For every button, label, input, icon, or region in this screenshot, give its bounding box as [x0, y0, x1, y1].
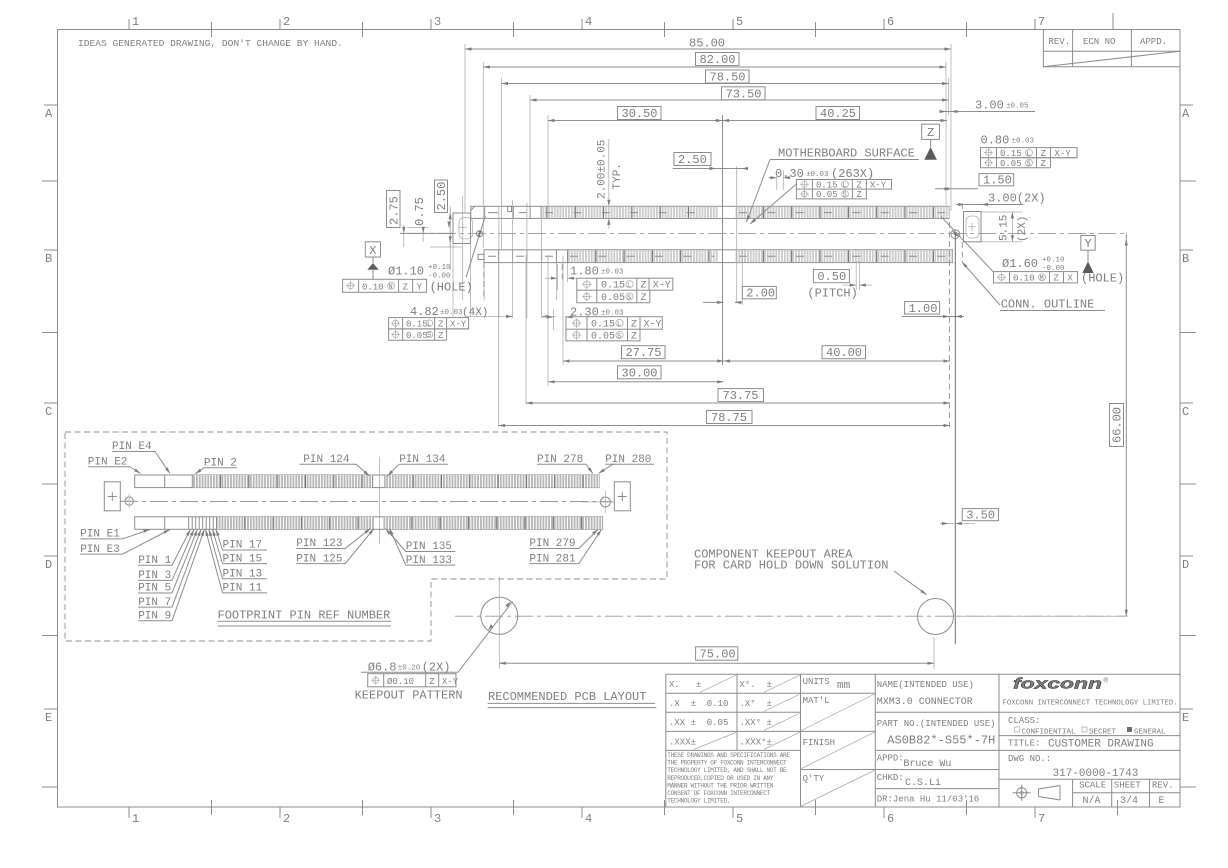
svg-text:.X° ±: .X° ±: [740, 699, 772, 709]
svg-text:Z: Z: [1041, 149, 1047, 159]
svg-text:GENERAL: GENERAL: [1134, 729, 1166, 737]
svg-text:78.50: 78.50: [710, 71, 746, 85]
svg-text:NAME(INTENDED USE): NAME(INTENDED USE): [877, 680, 974, 690]
svg-text:mm: mm: [837, 680, 851, 692]
svg-text:0.15: 0.15: [591, 320, 615, 331]
svg-text:X-Y: X-Y: [442, 677, 459, 687]
svg-text:N: N: [389, 284, 393, 292]
svg-text:0.15: 0.15: [1000, 149, 1022, 159]
svg-text:A: A: [1182, 107, 1190, 121]
svg-text:C: C: [1182, 405, 1189, 419]
svg-text:APPD:: APPD:: [877, 754, 904, 764]
svg-text:X°. ±: X°. ±: [740, 680, 772, 690]
svg-text:S: S: [617, 333, 621, 341]
svg-text:6: 6: [887, 812, 894, 826]
svg-text:FOOTPRINT PIN REF NUMBER: FOOTPRINT PIN REF NUMBER: [218, 608, 391, 622]
svg-text:0.75: 0.75: [413, 197, 427, 226]
svg-text:CHKD:: CHKD:: [877, 773, 904, 783]
svg-text:2: 2: [283, 812, 290, 826]
svg-text:1.50: 1.50: [983, 174, 1012, 188]
svg-text:0.05: 0.05: [601, 293, 625, 304]
svg-text:5.15: 5.15: [999, 215, 1011, 241]
svg-text:E: E: [1182, 711, 1189, 725]
svg-text:2: 2: [283, 15, 290, 29]
svg-text:X. ±: X. ±: [669, 680, 701, 690]
svg-text:Z: Z: [429, 677, 435, 687]
svg-text:N/A: N/A: [1083, 795, 1101, 807]
svg-text:2.50: 2.50: [678, 153, 707, 167]
svg-text:L: L: [627, 282, 631, 290]
svg-text:1: 1: [132, 812, 139, 826]
svg-text:317-0000-1743: 317-0000-1743: [1053, 768, 1139, 780]
svg-text:THE PROPERTY OF FOXCONN INTERC: THE PROPERTY OF FOXCONN INTERCONNECT: [667, 760, 787, 767]
svg-text:A: A: [45, 107, 53, 121]
svg-text:Z: Z: [1041, 159, 1047, 169]
svg-text:85.00: 85.00: [689, 37, 725, 51]
svg-text:TECHNOLOGY LIMITED, AND SHALL: TECHNOLOGY LIMITED, AND SHALL NOT BE: [667, 767, 787, 774]
svg-text:(HOLE): (HOLE): [1081, 272, 1124, 286]
svg-text:SHEET: SHEET: [1114, 781, 1142, 791]
svg-text:IDEAS GENERATED DRAWING, DON'T: IDEAS GENERATED DRAWING, DON'T CHANGE BY…: [78, 38, 343, 49]
svg-text:27.75: 27.75: [626, 346, 662, 360]
svg-text:0.05: 0.05: [816, 190, 838, 200]
svg-text:E: E: [1159, 796, 1165, 807]
svg-text:0.50: 0.50: [817, 270, 846, 284]
svg-text:Q'TY: Q'TY: [803, 774, 825, 784]
svg-text:TECHNOLOGY LIMITED,: TECHNOLOGY LIMITED,: [667, 798, 730, 805]
svg-text:4: 4: [585, 812, 592, 826]
svg-text:Y: Y: [417, 282, 423, 292]
svg-text:73.50: 73.50: [726, 87, 762, 101]
svg-text:ECN NO: ECN NO: [1083, 37, 1115, 47]
svg-text:DWG NO.:: DWG NO.:: [1008, 754, 1051, 764]
svg-text:2.50: 2.50: [435, 182, 449, 211]
svg-text:Z: Z: [631, 332, 637, 343]
svg-text:KEEPOUT PATTERN: KEEPOUT PATTERN: [355, 689, 463, 703]
svg-text:CLASS:: CLASS:: [1008, 716, 1040, 726]
svg-text:X-Y: X-Y: [870, 180, 887, 190]
svg-text:4: 4: [585, 15, 592, 29]
svg-text:MAT'L: MAT'L: [803, 696, 830, 706]
svg-text:CUSTOMER DRAWING: CUSTOMER DRAWING: [1048, 738, 1154, 750]
svg-text:±0.03: ±0.03: [440, 309, 463, 317]
svg-text:82.00: 82.00: [700, 53, 736, 67]
svg-text:C.S.Li: C.S.Li: [905, 777, 941, 789]
svg-text:X-Y: X-Y: [644, 320, 662, 331]
svg-text:30.00: 30.00: [622, 366, 658, 380]
svg-text:Z: Z: [403, 282, 409, 292]
svg-text:30.50: 30.50: [622, 107, 658, 121]
svg-text:±0.03: ±0.03: [601, 269, 624, 277]
svg-text:L: L: [617, 321, 621, 329]
svg-text:0.10: 0.10: [362, 282, 384, 292]
svg-text:.XX° ±: .XX° ±: [740, 718, 772, 728]
svg-text:THESE DRAWINGS AND SPECIFICATI: THESE DRAWINGS AND SPECIFICATIONS ARE: [667, 752, 790, 759]
svg-text:2.30: 2.30: [570, 306, 599, 320]
svg-text:Z: Z: [927, 126, 934, 140]
svg-text:B: B: [45, 252, 52, 266]
svg-text:MXM3.0 CONNECTOR: MXM3.0 CONNECTOR: [877, 697, 973, 708]
svg-text:.XXX±: .XXX±: [669, 738, 696, 748]
svg-text:L: L: [843, 182, 847, 190]
svg-text:3.00(2X): 3.00(2X): [988, 192, 1046, 206]
svg-text:0.05: 0.05: [406, 331, 428, 341]
svg-text:±0.20: ±0.20: [398, 665, 421, 673]
svg-text:2.00: 2.00: [746, 287, 775, 301]
svg-text:Ø0.10: Ø0.10: [387, 677, 414, 687]
svg-text:Z: Z: [1054, 274, 1060, 284]
svg-text:S: S: [843, 192, 847, 200]
svg-text:APPD.: APPD.: [1140, 37, 1167, 47]
svg-text:0.15: 0.15: [816, 180, 838, 190]
svg-text:.XXX°±: .XXX°±: [740, 738, 772, 748]
svg-text:M: M: [1040, 275, 1044, 283]
svg-text:+0.10: +0.10: [1042, 257, 1065, 265]
svg-text:0.05: 0.05: [591, 332, 615, 343]
svg-text:X-Y: X-Y: [1055, 149, 1072, 159]
svg-text:(263X): (263X): [831, 167, 874, 181]
svg-text:0.05: 0.05: [1000, 159, 1022, 169]
svg-text:+0.10: +0.10: [428, 264, 451, 272]
svg-text:S: S: [1027, 160, 1031, 168]
svg-text:AS0B82*-S55*-7H: AS0B82*-S55*-7H: [887, 734, 995, 748]
svg-text:Ø1.10: Ø1.10: [388, 265, 424, 279]
svg-text:40.25: 40.25: [820, 107, 856, 121]
svg-text:REV.: REV.: [1152, 781, 1174, 791]
svg-text:X: X: [369, 244, 376, 258]
svg-text:RECOMMENDED PCB LAYOUT: RECOMMENDED PCB LAYOUT: [488, 690, 646, 704]
svg-text:40.00: 40.00: [826, 346, 862, 360]
svg-text:X-Y: X-Y: [450, 320, 467, 330]
svg-text:Bruce Wu: Bruce Wu: [903, 759, 951, 770]
svg-text:PART NO.(INTENDED USE): PART NO.(INTENDED USE): [877, 719, 996, 729]
svg-text:TYP.: TYP.: [612, 163, 624, 189]
svg-text:FOR CARD HOLD DOWN SOLUTION: FOR CARD HOLD DOWN SOLUTION: [694, 559, 888, 573]
svg-text:0.10: 0.10: [1013, 274, 1035, 284]
svg-text:2.00±0.05: 2.00±0.05: [597, 140, 609, 199]
svg-text:3/4: 3/4: [1120, 795, 1138, 807]
svg-text:Ø1.60: Ø1.60: [1002, 257, 1038, 271]
svg-text:75.00: 75.00: [700, 648, 736, 662]
svg-text:CONSENT OF FOXCONN INTERCONNEC: CONSENT OF FOXCONN INTERCONNECT: [667, 790, 770, 797]
svg-text:0.15: 0.15: [406, 320, 428, 330]
svg-text:L: L: [1027, 150, 1031, 158]
svg-text:7: 7: [1038, 812, 1045, 826]
svg-text:0.15: 0.15: [601, 281, 625, 292]
svg-text:1.80: 1.80: [570, 265, 599, 279]
svg-text:73.75: 73.75: [723, 389, 759, 403]
svg-text:7: 7: [1038, 15, 1045, 29]
svg-text:Z: Z: [856, 180, 862, 190]
svg-text:B: B: [1182, 252, 1189, 266]
svg-text:(2X): (2X): [422, 661, 451, 675]
svg-text:5: 5: [736, 812, 743, 826]
svg-text:foxconn: foxconn: [1013, 677, 1102, 693]
svg-text:(2X): (2X): [1017, 216, 1029, 242]
svg-text:±0.03: ±0.03: [806, 171, 829, 179]
svg-text:Z: Z: [631, 320, 637, 331]
svg-text:3: 3: [434, 812, 441, 826]
svg-text:Y: Y: [1085, 237, 1092, 251]
svg-text:MANNER WITHOUT THE PRIOR WRITT: MANNER WITHOUT THE PRIOR WRITTEN: [667, 782, 774, 789]
svg-text:X-Y: X-Y: [653, 281, 671, 292]
svg-text:3.50: 3.50: [966, 509, 995, 523]
svg-text:4.82: 4.82: [410, 305, 439, 319]
svg-text:0.80: 0.80: [981, 134, 1010, 148]
svg-text:FOXCONN INTERCONNECT TECHNOLOG: FOXCONN INTERCONNECT TECHNOLOGY LIMITED.: [1003, 700, 1178, 708]
svg-text:DR:Jena Hu 11/03'16: DR:Jena Hu 11/03'16: [877, 795, 980, 805]
svg-text:®: ®: [1104, 677, 1109, 686]
svg-text:2.75: 2.75: [388, 196, 402, 225]
svg-text:D: D: [1182, 558, 1189, 572]
svg-text:S: S: [427, 332, 431, 340]
svg-text:3.00: 3.00: [975, 99, 1004, 113]
svg-text:66.00: 66.00: [1111, 407, 1125, 443]
svg-text:Z: Z: [641, 293, 647, 304]
svg-text:-0.00: -0.00: [428, 273, 451, 281]
svg-text:Z: Z: [856, 190, 862, 200]
svg-text:(HOLE): (HOLE): [430, 281, 473, 295]
svg-text:±0.05: ±0.05: [1006, 103, 1029, 111]
svg-text:C: C: [45, 405, 52, 419]
svg-text:Z: Z: [438, 331, 444, 341]
svg-text:MOTHERBOARD SURFACE: MOTHERBOARD SURFACE: [778, 147, 915, 161]
svg-text:FINISH: FINISH: [803, 738, 835, 748]
svg-text:SCALE: SCALE: [1079, 781, 1106, 791]
svg-text:TITLE:: TITLE:: [1008, 739, 1040, 749]
svg-text:Z: Z: [438, 320, 444, 330]
svg-text:±0.03: ±0.03: [1012, 138, 1035, 146]
svg-text:3: 3: [434, 15, 441, 29]
svg-text:.X ± 0.10: .X ± 0.10: [669, 699, 728, 709]
svg-text:(PITCH): (PITCH): [807, 287, 857, 301]
svg-text:REV.: REV.: [1049, 37, 1071, 47]
svg-text:E: E: [45, 711, 52, 725]
svg-text:REPRODUCED,COPIED OR USED IN A: REPRODUCED,COPIED OR USED IN ANY: [667, 775, 774, 782]
svg-text:78.75: 78.75: [711, 411, 747, 425]
svg-text:X: X: [1068, 274, 1074, 284]
svg-text:CONN. OUTLINE: CONN. OUTLINE: [1001, 298, 1095, 312]
svg-text:Ø6.8: Ø6.8: [368, 661, 397, 675]
svg-text:L: L: [427, 321, 431, 329]
svg-text:D: D: [45, 558, 52, 572]
svg-text:Z: Z: [641, 281, 647, 292]
svg-text:6: 6: [887, 15, 894, 29]
svg-text:1.00: 1.00: [909, 302, 938, 316]
svg-text:S: S: [627, 294, 631, 302]
svg-text:5: 5: [736, 15, 743, 29]
svg-text:UNITS: UNITS: [803, 677, 830, 687]
svg-text:1: 1: [132, 15, 139, 29]
svg-text:.XX ± 0.05: .XX ± 0.05: [669, 718, 728, 728]
